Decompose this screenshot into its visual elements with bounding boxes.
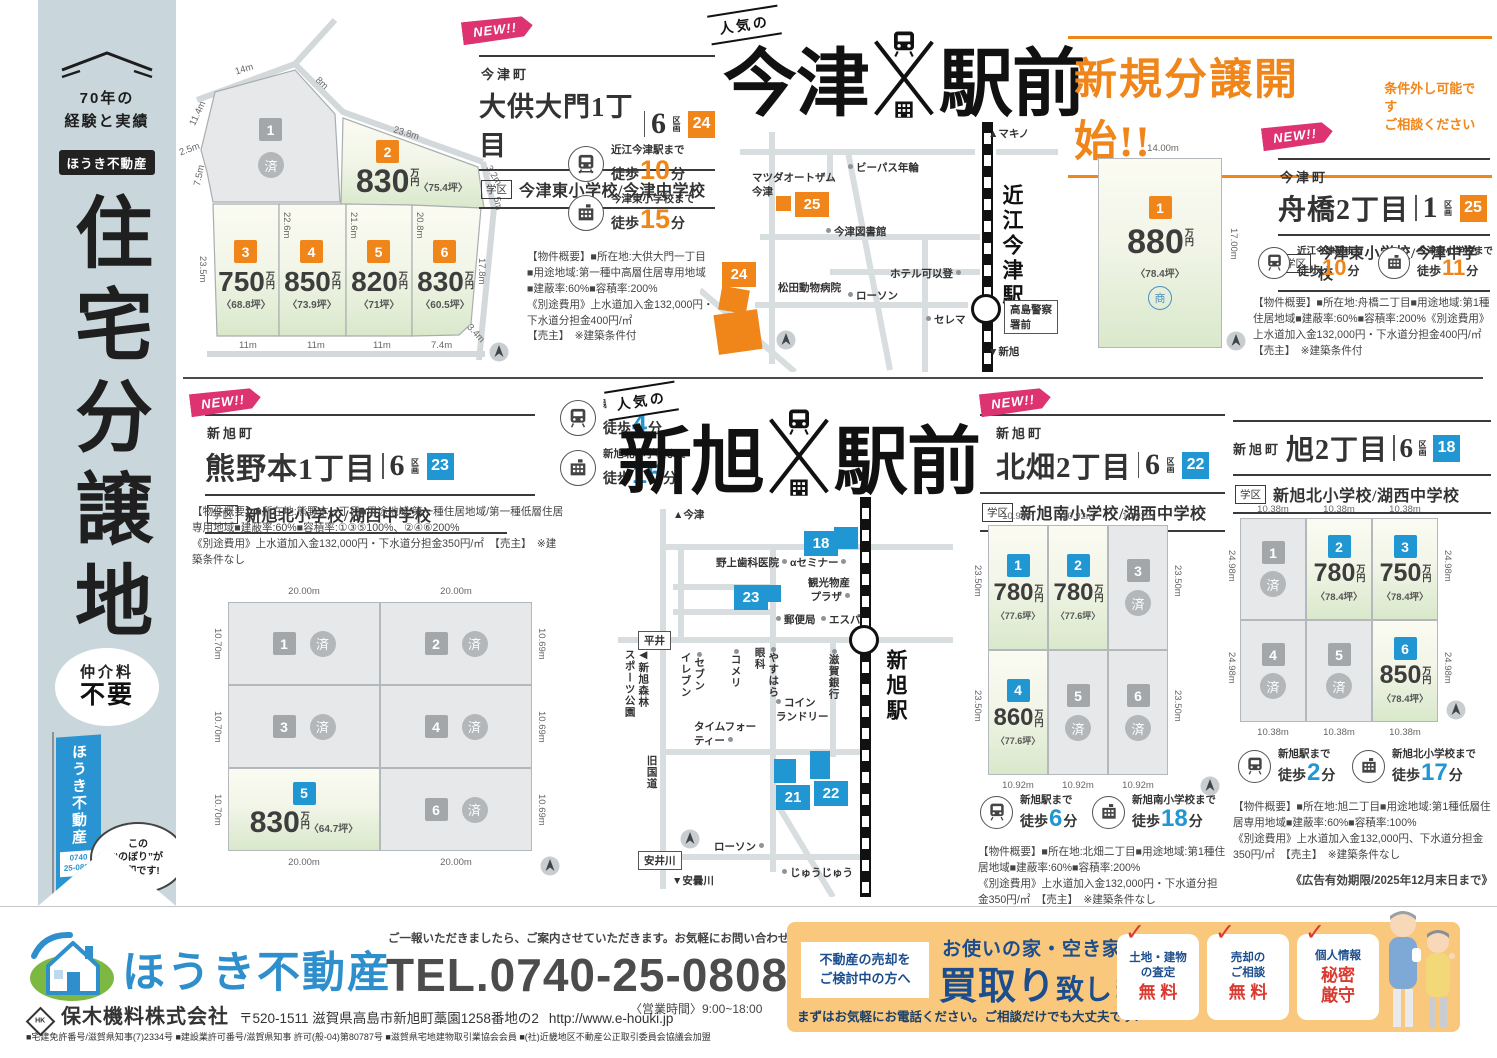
footer-divider bbox=[0, 906, 1497, 907]
dim-label: 24.98m bbox=[1226, 550, 1237, 582]
dim-label: 23.5m bbox=[197, 256, 208, 282]
lot-price: 830万円 〈75.4坪〉 bbox=[356, 165, 468, 197]
lot-tsubo: 〈78.4坪〉 bbox=[1316, 589, 1363, 603]
sold-mark: 済 bbox=[1326, 673, 1352, 699]
lot-number: 2 bbox=[1067, 554, 1090, 577]
map-poi: コメリ bbox=[728, 649, 742, 689]
lot-tsubo: 〈73.9坪〉 bbox=[283, 296, 341, 311]
site23-overview: 【物件概要】■所在地:熊野本一丁目■用途地域:第一種住居地域/第一種低層住居専用… bbox=[192, 505, 564, 569]
dim-label: 17.8m bbox=[476, 258, 487, 284]
lot-count-unit: 区画 bbox=[1444, 200, 1452, 216]
lot-cell: 1 780万円 〈77.6坪〉 bbox=[988, 525, 1048, 650]
school-icon bbox=[1092, 796, 1125, 829]
map-site-badge: 18 bbox=[804, 531, 838, 556]
lot-tsubo: 〈68.8坪〉 bbox=[217, 296, 275, 311]
building-icon bbox=[786, 473, 812, 499]
lot-cell: 1 880万円 〈78.4坪〉 商 bbox=[1098, 158, 1222, 348]
walk-minutes: 17 bbox=[1421, 761, 1448, 785]
section-divider bbox=[183, 377, 1483, 379]
check-icon: ✓ bbox=[1125, 918, 1145, 947]
map-direction: ▼安曇川 bbox=[672, 875, 714, 889]
dim-label: 10.69m bbox=[536, 794, 547, 826]
site-number-badge: 22 bbox=[1182, 452, 1209, 479]
walk-label: 徒歩 bbox=[1417, 264, 1441, 278]
dim-label: 11m bbox=[307, 340, 325, 351]
dim-label: 7.4m bbox=[431, 340, 452, 351]
site24-overview: 【物件概要】■所在地:大供大門一丁目 ■用途地域:第一種中高層住居専用地域 ■建… bbox=[527, 250, 717, 345]
train-icon bbox=[889, 29, 919, 59]
train-icon bbox=[1258, 247, 1290, 279]
map-site-badge: 21 bbox=[776, 785, 810, 810]
dim-label: 10.38m bbox=[1240, 727, 1306, 738]
map-site-badge: 25 bbox=[795, 192, 829, 217]
lot-tsubo: 〈78.4坪〉 bbox=[1382, 691, 1429, 705]
lot-number: 4 bbox=[300, 240, 323, 263]
lot-number: 4 bbox=[425, 715, 448, 738]
dim-label: 20.00m bbox=[380, 857, 532, 868]
map-poi: αセミナー bbox=[790, 557, 846, 571]
map-poi: じゅうじゅう bbox=[782, 867, 853, 881]
price-number: 880 bbox=[1127, 225, 1184, 259]
site25-overview: 【物件概要】■所在地:舟橋二丁目■用途地域:第1種住居地域■建蔽率:60%■容積… bbox=[1253, 296, 1493, 360]
access-train: 近江今津駅まで 徒歩10分 bbox=[1258, 246, 1364, 279]
map-poi: セレマ bbox=[926, 314, 966, 328]
lot-count-unit: 区画 bbox=[672, 116, 680, 132]
dim-label: 10.92m bbox=[1048, 780, 1108, 791]
price-unit: 万円 bbox=[1421, 666, 1430, 684]
buyback-promo: 不動産の売却を ご検討中の方へ お使いの家・空き家・土地 買取り 致します! ま… bbox=[787, 922, 1460, 1032]
walk-label: 徒歩 bbox=[1278, 767, 1306, 784]
lot-cell: 4済 bbox=[380, 685, 532, 768]
dim-label: 23.50m bbox=[972, 690, 983, 722]
imazu-area-map: 近江今津駅 高島警察署前 ▲マキノ ▼新旭 ビーパス年輪 マツダオートザム 今津… bbox=[700, 122, 1058, 372]
school-icon bbox=[1378, 247, 1410, 279]
flag-brand-text: ほうき不動産 bbox=[68, 743, 89, 846]
walk-minutes: 6 bbox=[1049, 807, 1062, 831]
compass-icon bbox=[680, 829, 700, 849]
dim-label: 20.00m bbox=[228, 586, 380, 597]
price-unit: 万円 bbox=[398, 271, 407, 289]
card-label: 売却の ご相談 bbox=[1231, 951, 1266, 980]
map-poi: 松田動物病院 bbox=[778, 282, 841, 296]
town-name: 新旭町 bbox=[207, 423, 535, 442]
divider bbox=[1138, 452, 1140, 478]
card-value: 無 料 bbox=[1139, 983, 1178, 1003]
map-poi: タイムフォー ティー bbox=[694, 721, 756, 748]
promo-card-privacy: ✓ 個人情報 秘密 厳守 bbox=[1297, 934, 1379, 1020]
lot-cell: 3 750万円 〈78.4坪〉 bbox=[1372, 518, 1438, 620]
lot-tsubo: 〈78.4坪〉 bbox=[1382, 589, 1429, 603]
sold-mark: 済 bbox=[1125, 590, 1151, 616]
station-circle bbox=[849, 625, 879, 655]
new-flag: NEW!! bbox=[979, 386, 1052, 417]
town-name: 今津町 bbox=[481, 64, 715, 83]
lot-count: 6 bbox=[1400, 433, 1414, 464]
dim-label: 10.38m bbox=[1240, 504, 1306, 515]
check-icon: ✓ bbox=[1305, 918, 1325, 947]
site-number-badge: 18 bbox=[1433, 435, 1460, 462]
town-name: 新旭町 bbox=[996, 423, 1225, 442]
lot-cell: 5済 bbox=[1306, 620, 1372, 722]
dim-label: 23.50m bbox=[1172, 565, 1183, 597]
dim-label: 10.38m bbox=[1372, 504, 1438, 515]
flag-pole bbox=[52, 732, 54, 904]
dim-label: 10.70m bbox=[212, 794, 223, 826]
sold-mark: 済 bbox=[258, 152, 284, 178]
price-number: 830 bbox=[356, 165, 409, 197]
company-name: 保木機料株式会社 bbox=[61, 1000, 229, 1029]
flag-note-bubble: この “のぼり”が 目印です! bbox=[90, 822, 186, 894]
lot-count: 6 bbox=[651, 107, 666, 141]
dim-label: 10.38m bbox=[1372, 727, 1438, 738]
ad-validity: 《広告有効期限/2025年12月末日まで》 bbox=[1240, 872, 1493, 888]
lot-cell: 2 780万円 〈78.4坪〉 bbox=[1306, 518, 1372, 620]
dim-label: 24.98m bbox=[1442, 652, 1453, 684]
flyer-page: 70年の 経験と実績 ほうき不動産 住宅分譲地 仲介料 不要 ほうき不動産 07… bbox=[0, 0, 1497, 1058]
lot-tsubo: 〈64.7坪〉 bbox=[309, 820, 358, 835]
walk-label: 徒歩 bbox=[1297, 264, 1321, 278]
sold-mark: 済 bbox=[310, 631, 336, 657]
walk-minutes: 15 bbox=[640, 206, 670, 233]
lot-price: 850万円 〈73.9坪〉 bbox=[283, 268, 341, 311]
dim-label: 10.38m bbox=[1306, 504, 1372, 515]
dim-label: 10.92m bbox=[1048, 511, 1108, 522]
lot-count-unit: 区画 bbox=[1166, 457, 1174, 473]
minutes-unit: 分 bbox=[1189, 813, 1203, 830]
sold-mark: 済 bbox=[310, 714, 336, 740]
school-zone-tag: 学区 bbox=[481, 180, 512, 199]
dim-label: 14.00m bbox=[1128, 143, 1198, 154]
price-number: 780 bbox=[1314, 561, 1356, 586]
walk-minutes: 10 bbox=[1322, 257, 1346, 279]
lot-tsubo: 〈77.6坪〉 bbox=[1056, 609, 1101, 622]
walk-label: 徒歩 bbox=[1132, 813, 1160, 830]
building-icon bbox=[891, 95, 917, 121]
company-address: 〒520-1511 滋賀県高島市新旭町藁園1258番地の2 bbox=[239, 1007, 539, 1027]
no-fee-bottom: 不要 bbox=[80, 681, 134, 710]
dim-label: 10.92m bbox=[988, 511, 1048, 522]
lot-cell: 4 860万円 〈77.6坪〉 bbox=[988, 650, 1048, 775]
dim-label: 10.69m bbox=[536, 711, 547, 743]
dim-label: 10.92m bbox=[1108, 780, 1168, 791]
lot-cell: 4済 bbox=[1240, 620, 1306, 722]
lot-number: 1 bbox=[1149, 196, 1172, 219]
walk-label: 徒歩 bbox=[611, 215, 639, 232]
minutes-unit: 分 bbox=[671, 166, 685, 183]
map-poi: ローソン bbox=[714, 841, 764, 855]
map-poi: 観光物産 プラザ bbox=[808, 577, 850, 604]
lot-number: 5 bbox=[367, 240, 390, 263]
card-label: 個人情報 bbox=[1315, 949, 1361, 963]
map-lot-marker bbox=[713, 309, 762, 355]
walk-minutes: 10 bbox=[640, 157, 670, 184]
lot-number: 3 bbox=[1127, 559, 1150, 582]
experience-text: 70年の 経験と実績 bbox=[38, 88, 176, 133]
price-number: 750 bbox=[218, 268, 265, 296]
price-number: 830 bbox=[250, 808, 300, 838]
main-title: 住宅分譲地 bbox=[68, 192, 146, 652]
station-name: 新旭駅 bbox=[880, 649, 910, 724]
price-unit: 万円 bbox=[1355, 564, 1364, 582]
walk-label: 徒歩 bbox=[1392, 767, 1420, 784]
lot-number: 5 bbox=[1328, 643, 1351, 666]
lot-cell: 6済 bbox=[1108, 650, 1168, 775]
site-name: 舟橋2丁目 bbox=[1278, 188, 1409, 228]
headline-right: 駅前 bbox=[939, 24, 1085, 131]
headline-right: 駅前 bbox=[834, 402, 980, 509]
site-name: 熊野本1丁目 bbox=[205, 444, 376, 488]
dim-label: 21.6m bbox=[348, 212, 359, 238]
map-poi: ホテル可以登 bbox=[890, 268, 961, 282]
map-direction: ▲今津 bbox=[673, 509, 704, 523]
divider bbox=[1393, 435, 1395, 461]
company-row: HK 保木機料株式会社 〒520-1511 滋賀県高島市新旭町藁園1258番地の… bbox=[30, 1000, 673, 1032]
map-label-box: 安井川 bbox=[638, 851, 682, 870]
site24-plan: 1 済 2 830万円 〈75.4坪〉 3 750万円 〈68.8坪〉 4 85… bbox=[183, 12, 513, 364]
lot-number: 1 bbox=[259, 118, 282, 141]
lot-cell: 2済 bbox=[380, 602, 532, 685]
footer-phone: TEL.0740-25-0808 bbox=[386, 948, 788, 1002]
town-name: 今津町 bbox=[1280, 167, 1490, 186]
couple-illustration bbox=[1379, 906, 1457, 1030]
railway-line bbox=[982, 122, 993, 372]
divider bbox=[644, 111, 645, 137]
map-poi: コイン ランドリー bbox=[776, 697, 829, 724]
map-poi: 今津図書館 bbox=[826, 226, 887, 240]
station-cross-icon bbox=[873, 33, 935, 123]
compass-icon bbox=[1446, 700, 1466, 720]
houki-logo-icon bbox=[28, 926, 116, 1002]
train-icon bbox=[1238, 750, 1271, 783]
map-label-box: 平井 bbox=[638, 631, 671, 650]
map-site-badge: 22 bbox=[814, 781, 848, 806]
map-poi: 野上歯科医院 bbox=[716, 557, 787, 571]
walk-minutes: 11 bbox=[1442, 257, 1465, 279]
lot-number: 3 bbox=[273, 715, 296, 738]
access-train: 近江今津駅まで 徒歩10分 bbox=[568, 144, 685, 184]
lot-count: 6 bbox=[1145, 448, 1160, 482]
lot-number: 6 bbox=[1394, 637, 1417, 660]
card-value: 無 料 bbox=[1229, 983, 1268, 1003]
dim-label: 10.70m bbox=[212, 628, 223, 660]
footer-message: ご一報いただきましたら、ご案内させていただきます。お気軽にお問い合わせください。 bbox=[388, 930, 847, 946]
minutes-unit: 分 bbox=[671, 215, 685, 232]
promo-card-assessment: ✓ 土地・建物 の査定 無 料 bbox=[1117, 934, 1199, 1020]
map-direction: ▲マキノ bbox=[988, 128, 1029, 142]
map-lot-marker bbox=[776, 196, 791, 211]
map-site-badge: 23 bbox=[734, 585, 768, 610]
shinasahi-headline: 人気の 新旭 駅前 bbox=[618, 402, 980, 509]
map-lot-marker bbox=[810, 751, 830, 779]
school-icon bbox=[560, 450, 596, 486]
price-number: 780 bbox=[1053, 581, 1093, 605]
new-flag: NEW!! bbox=[189, 386, 262, 417]
lot-tsubo: 〈78.4坪〉 bbox=[1135, 265, 1184, 280]
price-number: 780 bbox=[993, 581, 1033, 605]
map-poi: 旧国道 bbox=[644, 755, 658, 790]
compass-icon bbox=[776, 330, 796, 350]
dim-label: 11m bbox=[239, 340, 257, 351]
shinasahi-area-map: 新旭駅 ▲今津 18 野上歯科医院 αセミナー 観光物産 プラザ 23 郵便局 … bbox=[618, 497, 953, 897]
compass-icon bbox=[1226, 331, 1246, 351]
school-icon bbox=[1352, 750, 1385, 783]
minutes-unit: 分 bbox=[1449, 767, 1463, 784]
access-school: 今津東小学校まで 徒歩11分 bbox=[1378, 246, 1493, 279]
lot-number: 3 bbox=[1394, 535, 1417, 558]
lot-tsubo: 〈60.5坪〉 bbox=[416, 296, 474, 311]
train-icon bbox=[980, 796, 1013, 829]
price-number: 820 bbox=[351, 268, 398, 296]
lot-number: 4 bbox=[1262, 643, 1285, 666]
price-unit: 万円 bbox=[1034, 709, 1043, 727]
price-unit: 万円 bbox=[300, 811, 309, 829]
sidebar-ribbon: 70年の 経験と実績 ほうき不動産 住宅分譲地 仲介料 不要 ほうき不動産 07… bbox=[38, 0, 176, 906]
access-school: 新旭北小学校まで 徒歩17分 bbox=[1352, 748, 1476, 785]
dim-label: 23.50m bbox=[972, 565, 983, 597]
imazu-headline: 人気の 今津 駅前 bbox=[723, 24, 1085, 131]
dim-label: 23.50m bbox=[1172, 690, 1183, 722]
lot-cell: 3済 bbox=[228, 685, 380, 768]
lot-count-unit: 区画 bbox=[1418, 440, 1426, 456]
dim-label: 22.6m bbox=[281, 212, 292, 238]
lot-number: 5 bbox=[293, 782, 316, 805]
lot-cell: 3済 bbox=[1108, 525, 1168, 650]
lot-tsubo: 〈77.6坪〉 bbox=[996, 734, 1041, 747]
price-number: 750 bbox=[1380, 561, 1422, 586]
sold-mark: 済 bbox=[1260, 571, 1286, 597]
card-label: 土地・建物 の査定 bbox=[1129, 951, 1187, 980]
dim-label: 10.38m bbox=[1306, 727, 1372, 738]
sold-mark: 済 bbox=[462, 631, 488, 657]
site18-header: 新旭町 旭2丁目 6 区画 18 学区 新旭北小学校/湖西中学校 bbox=[1233, 420, 1491, 514]
site-number-badge: 23 bbox=[427, 453, 454, 480]
commercial-mark: 商 bbox=[1148, 286, 1172, 310]
school-icon bbox=[568, 195, 604, 231]
dim-label: 10.92m bbox=[1108, 511, 1168, 522]
access-school: 今津東小学校まで 徒歩15分 bbox=[568, 193, 695, 233]
promo-note: まずはお気軽にお電話ください。ご相談だけでも大丈夫です! bbox=[797, 1006, 1139, 1025]
school-zone-names: 新旭北小学校/湖西中学校 bbox=[1273, 482, 1459, 506]
lot-number: 1 bbox=[1007, 554, 1030, 577]
price-unit: 万円 bbox=[331, 271, 340, 289]
price-unit: 万円 bbox=[1421, 564, 1430, 582]
walk-label: 徒歩 bbox=[1020, 813, 1048, 830]
dim-label: 20.8m bbox=[414, 212, 425, 238]
lot-cell: 5 830万円 〈64.7坪〉 bbox=[228, 768, 380, 851]
lot-number: 3 bbox=[234, 240, 257, 263]
station-cross-icon bbox=[768, 411, 830, 501]
access-train: 新旭駅まで 徒歩2分 bbox=[1238, 748, 1335, 785]
price-number: 850 bbox=[1380, 663, 1422, 688]
minutes-unit: 分 bbox=[1321, 767, 1335, 784]
lot-cell: 1済 bbox=[228, 602, 380, 685]
lot-price: 820万円 〈71坪〉 bbox=[350, 268, 408, 311]
school-zone-tag: 学区 bbox=[1235, 485, 1266, 504]
map-poi: やすはら 眼科 bbox=[752, 647, 779, 698]
town-name: 新旭町 bbox=[1233, 439, 1281, 458]
price-number: 850 bbox=[284, 268, 331, 296]
promo-headline-big: 買取り bbox=[939, 955, 1056, 1010]
site-number-badge: 25 bbox=[1460, 195, 1487, 222]
lot-number: 6 bbox=[433, 240, 456, 263]
dim-label: 24.98m bbox=[1442, 550, 1453, 582]
minutes-unit: 分 bbox=[1466, 264, 1478, 278]
sold-mark: 済 bbox=[1260, 673, 1286, 699]
dim-label: 20.00m bbox=[380, 586, 532, 597]
lot-price: 750万円 〈68.8坪〉 bbox=[217, 268, 275, 311]
walk-minutes: 2 bbox=[1307, 761, 1320, 785]
price-unit: 万円 bbox=[1184, 228, 1193, 246]
promo-target-box: 不動産の売却を ご検討中の方へ bbox=[801, 942, 929, 998]
lot-tsubo: 〈75.4坪〉 bbox=[418, 179, 467, 194]
train-icon bbox=[560, 400, 596, 436]
lot-number: 5 bbox=[1067, 684, 1090, 707]
compass-icon bbox=[489, 342, 509, 362]
lot-tsubo: 〈71坪〉 bbox=[350, 296, 408, 311]
no-fee-top: 仲介料 bbox=[80, 664, 134, 681]
sold-mark: 済 bbox=[462, 797, 488, 823]
dim-label: 10.92m bbox=[988, 780, 1048, 791]
card-value: 秘密 厳守 bbox=[1321, 966, 1355, 1005]
price-number: 830 bbox=[417, 268, 464, 296]
lot-tsubo: 〈77.6坪〉 bbox=[996, 609, 1041, 622]
roof-icon bbox=[58, 48, 156, 80]
lot-number: 2 bbox=[425, 632, 448, 655]
minutes-unit: 分 bbox=[1063, 813, 1077, 830]
price-unit: 万円 bbox=[464, 271, 473, 289]
map-poi: エスパ bbox=[821, 614, 861, 628]
company-url: http://www.e-houki.jp bbox=[549, 1011, 674, 1026]
lot-cell: 1済 bbox=[1240, 518, 1306, 620]
site-name: 旭2丁目 bbox=[1286, 428, 1388, 468]
map-poi: セブン イレブン bbox=[678, 652, 705, 698]
price-unit: 万円 bbox=[265, 271, 274, 289]
dim-label: 10.70m bbox=[212, 711, 223, 743]
lot-number: 4 bbox=[1007, 679, 1030, 702]
divider bbox=[382, 453, 384, 479]
price-unit: 万円 bbox=[409, 168, 418, 186]
map-poi: ◀新旭森林 スポーツ公園 bbox=[622, 649, 649, 718]
walk-label: 徒歩 bbox=[611, 166, 639, 183]
lot-number: 6 bbox=[425, 798, 448, 821]
walk-minutes: 18 bbox=[1161, 807, 1188, 831]
brand-pill: ほうき不動産 bbox=[59, 150, 155, 175]
map-poi: ビーパス年輪 bbox=[848, 162, 919, 176]
lot-count: 1 bbox=[1423, 191, 1438, 225]
lot-cell: 5済 bbox=[1048, 650, 1108, 775]
railway-line bbox=[860, 497, 871, 897]
lot-number: 6 bbox=[1127, 684, 1150, 707]
map-site-badge: 24 bbox=[722, 262, 756, 287]
station-name: 近江今津駅 bbox=[996, 184, 1026, 309]
map-poi: 郵便局 bbox=[776, 614, 816, 628]
license-text: ■宅建免許番号/滋賀県知事(7)2334号 ■建設業許可番号/滋賀県知事 許可(… bbox=[26, 1030, 766, 1043]
site24-header: 今津町 大供大門1丁目 6 区画 24 学区 今津東小学校/今津中学校 bbox=[479, 55, 715, 209]
headline-left: 新旭 bbox=[618, 402, 764, 509]
train-icon bbox=[568, 146, 604, 182]
compass-icon bbox=[540, 856, 560, 876]
access-school: 新旭南小学校まで 徒歩18分 bbox=[1092, 794, 1216, 831]
minutes-unit: 分 bbox=[1348, 264, 1360, 278]
compass-icon bbox=[1200, 776, 1220, 796]
sold-mark: 済 bbox=[1125, 715, 1151, 741]
sold-mark: 済 bbox=[1065, 715, 1091, 741]
price-unit: 万円 bbox=[1034, 584, 1043, 602]
dim-label: 20.00m bbox=[228, 857, 380, 868]
lot-number: 1 bbox=[273, 632, 296, 655]
access-train: 新旭駅まで 徒歩6分 bbox=[980, 794, 1077, 831]
price-number: 860 bbox=[993, 706, 1033, 730]
